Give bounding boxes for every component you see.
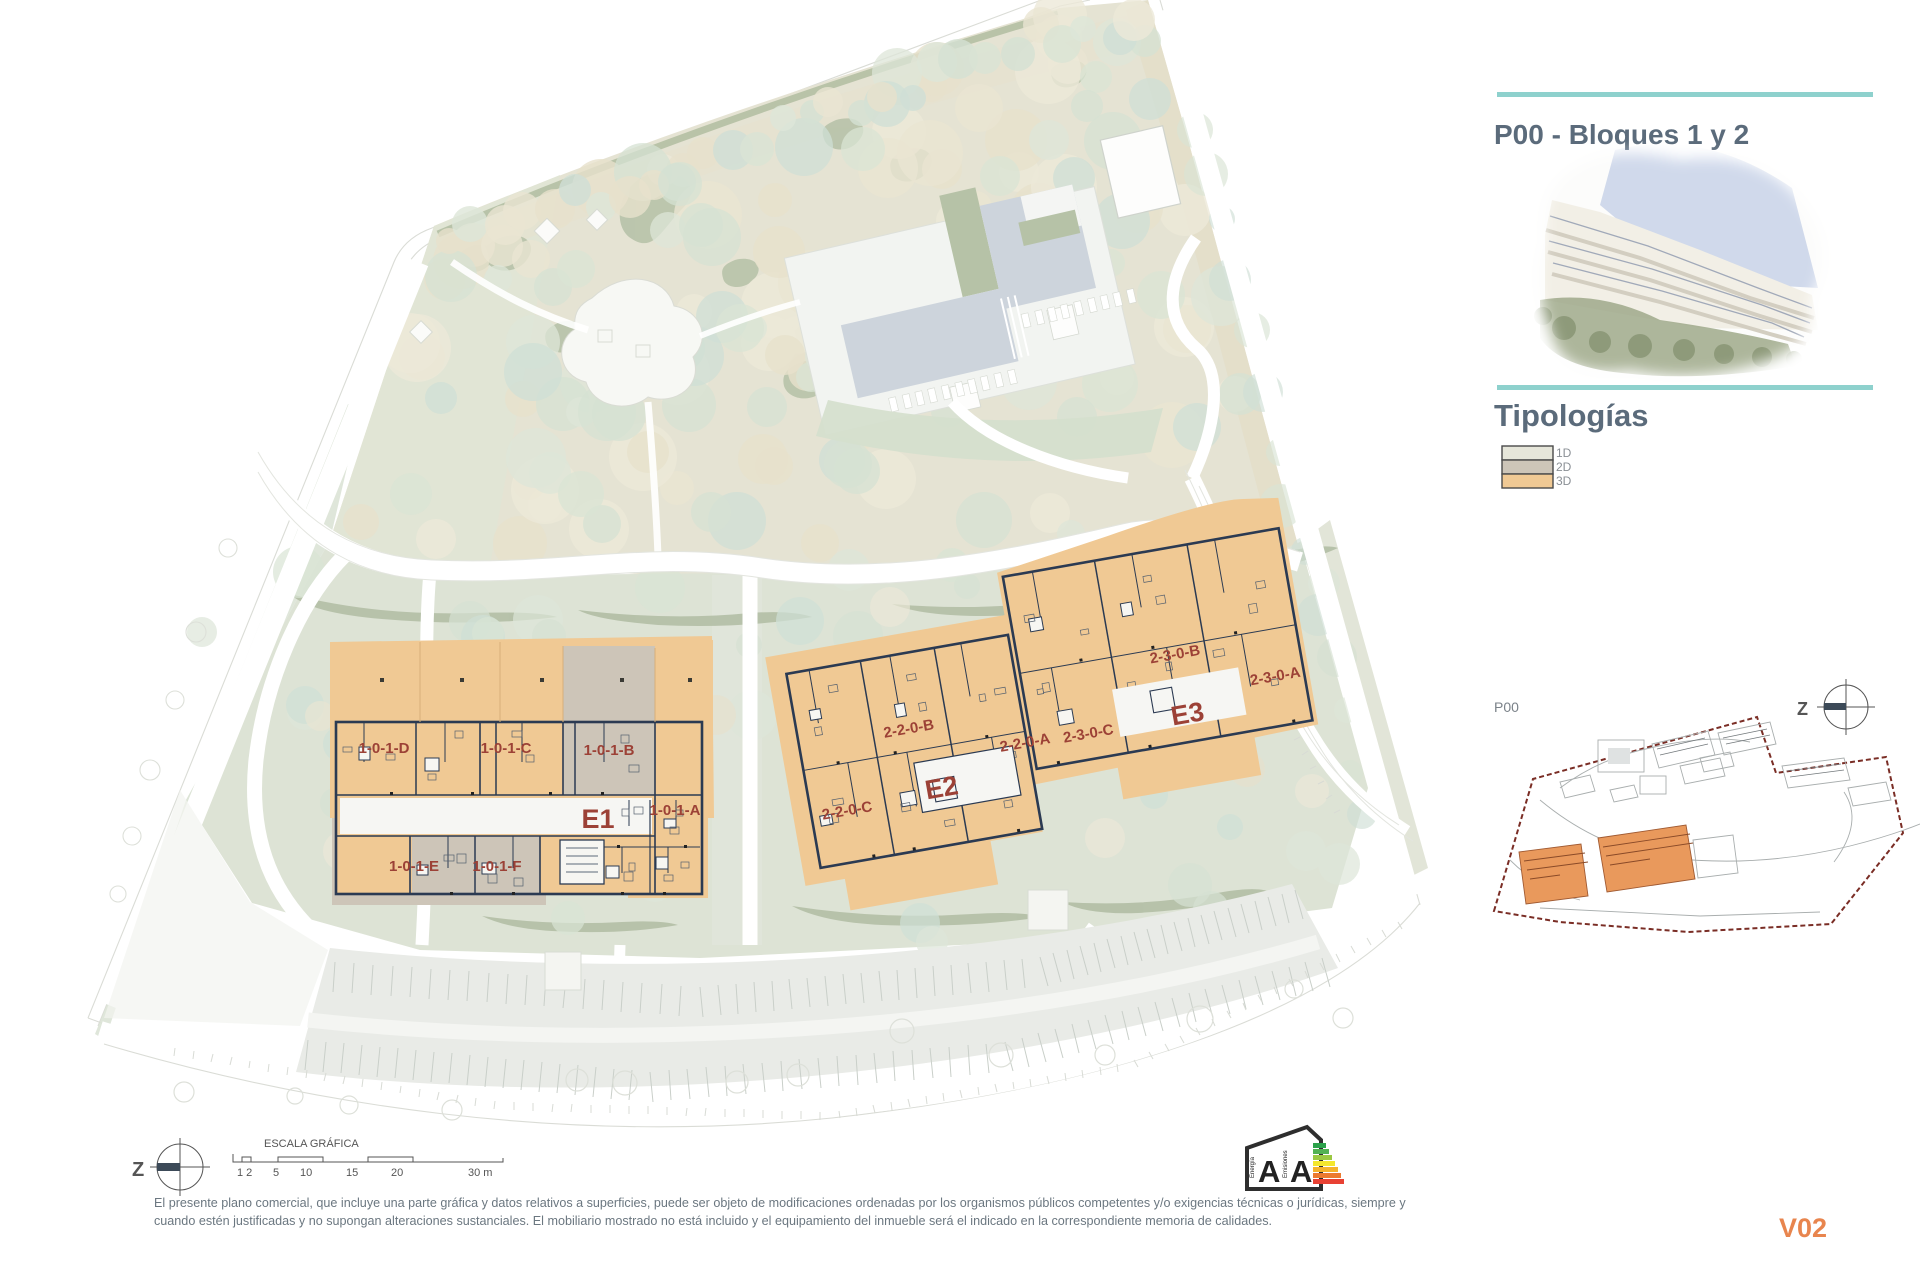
svg-text:30 m: 30 m xyxy=(468,1167,492,1179)
svg-text:1-0-1-F: 1-0-1-F xyxy=(472,858,521,875)
svg-text:A: A xyxy=(1290,1154,1312,1189)
svg-text:1-0-1-E: 1-0-1-E xyxy=(389,858,439,875)
svg-text:1 2: 1 2 xyxy=(237,1167,252,1179)
svg-text:20: 20 xyxy=(391,1167,403,1179)
svg-text:3D: 3D xyxy=(1556,474,1572,488)
svg-text:Emisiones: Emisiones xyxy=(1283,1150,1289,1178)
svg-text:E3: E3 xyxy=(1169,696,1207,731)
svg-text:E1: E1 xyxy=(581,804,614,834)
svg-text:Energía: Energía xyxy=(1250,1156,1256,1178)
svg-text:cuando estén justificadas y no: cuando estén justificadas y no supongan … xyxy=(154,1214,1272,1228)
svg-text:1D: 1D xyxy=(1556,446,1572,460)
svg-text:2D: 2D xyxy=(1556,460,1572,474)
svg-text:15: 15 xyxy=(346,1167,358,1179)
svg-text:El presente plano comercial, q: El presente plano comercial, que incluye… xyxy=(154,1196,1406,1210)
svg-text:1-0-1-B: 1-0-1-B xyxy=(584,742,635,759)
svg-text:P00: P00 xyxy=(1494,699,1519,715)
svg-text:1-0-1-C: 1-0-1-C xyxy=(481,740,532,757)
svg-text:Z: Z xyxy=(1797,699,1808,719)
svg-text:1-0-1-A: 1-0-1-A xyxy=(650,802,701,819)
svg-text:Tipologías: Tipologías xyxy=(1494,398,1648,433)
svg-text:A: A xyxy=(1258,1154,1280,1189)
svg-text:1-0-1-D: 1-0-1-D xyxy=(359,740,410,757)
svg-text:V02: V02 xyxy=(1779,1213,1827,1243)
svg-text:E2: E2 xyxy=(923,770,961,805)
svg-text:10: 10 xyxy=(300,1167,312,1179)
svg-text:Z: Z xyxy=(132,1159,144,1181)
svg-text:5: 5 xyxy=(273,1167,279,1179)
svg-text:ESCALA GRÁFICA: ESCALA GRÁFICA xyxy=(264,1137,359,1150)
